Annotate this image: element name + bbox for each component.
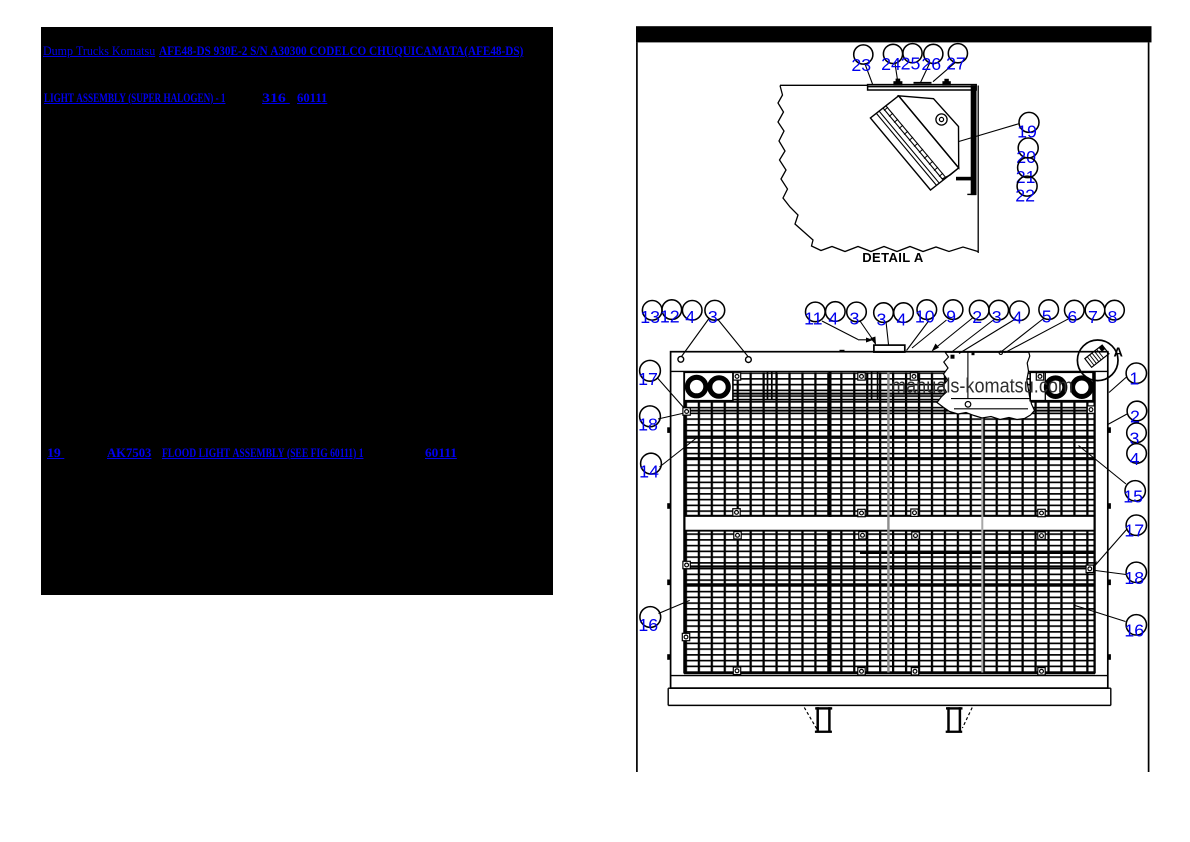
svg-text:6: 6 (1067, 307, 1077, 327)
svg-text:10: 10 (915, 306, 935, 326)
svg-text:11: 11 (804, 309, 823, 329)
svg-text:15: 15 (1123, 486, 1143, 506)
svg-text:18: 18 (1124, 568, 1144, 588)
svg-text:4: 4 (897, 309, 907, 329)
svg-text:2: 2 (972, 307, 982, 327)
svg-text:4: 4 (1012, 308, 1022, 328)
svg-text:3: 3 (992, 307, 1002, 327)
svg-text:12: 12 (660, 306, 680, 326)
svg-text:5: 5 (1042, 306, 1052, 326)
svg-text:23: 23 (851, 55, 871, 75)
svg-text:DETAIL A: DETAIL A (862, 250, 924, 265)
svg-text:4: 4 (685, 307, 695, 327)
svg-text:1: 1 (1129, 369, 1139, 389)
svg-text:17: 17 (638, 369, 658, 389)
svg-text:14: 14 (639, 462, 659, 482)
svg-text:3: 3 (708, 307, 718, 327)
svg-text:27: 27 (946, 54, 966, 74)
svg-text:18: 18 (638, 414, 658, 434)
svg-text:A: A (1114, 345, 1124, 360)
svg-text:manuals-komatsu.com: manuals-komatsu.com (891, 376, 1073, 398)
svg-text:8: 8 (1108, 307, 1118, 327)
svg-text:22: 22 (1015, 185, 1035, 205)
svg-text:3: 3 (850, 309, 860, 329)
svg-text:4: 4 (828, 308, 838, 328)
svg-text:26: 26 (921, 54, 941, 74)
svg-text:16: 16 (1124, 620, 1144, 640)
svg-text:4: 4 (1130, 449, 1140, 469)
svg-text:9: 9 (946, 306, 956, 326)
svg-text:3: 3 (877, 309, 887, 329)
svg-text:16: 16 (638, 615, 658, 635)
svg-text:17: 17 (1124, 521, 1144, 541)
svg-text:25: 25 (901, 54, 921, 74)
svg-text:24: 24 (881, 54, 901, 74)
svg-text:13: 13 (640, 307, 660, 327)
svg-text:7: 7 (1088, 307, 1098, 327)
